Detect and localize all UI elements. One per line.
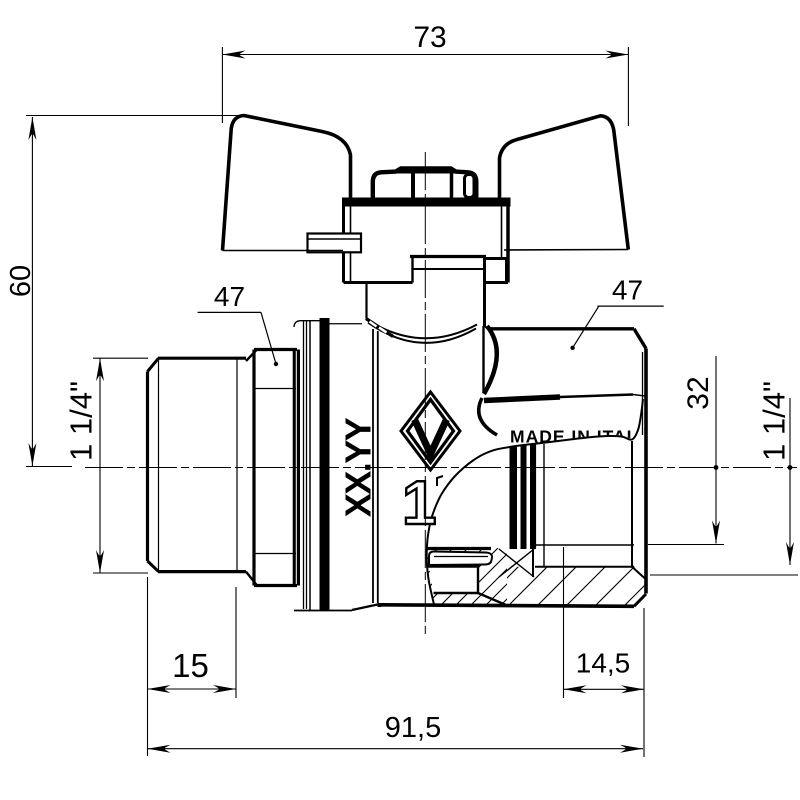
svg-text:15: 15 <box>172 647 209 684</box>
svg-text:47: 47 <box>612 275 643 306</box>
svg-text:32: 32 <box>682 376 715 409</box>
svg-text:1 1/4": 1 1/4" <box>757 381 792 461</box>
svg-text:14,5: 14,5 <box>576 648 631 679</box>
svg-text:60: 60 <box>5 265 37 297</box>
svg-text:91,5: 91,5 <box>385 712 441 744</box>
svg-text:1 1/4": 1 1/4" <box>64 381 99 461</box>
svg-text:73: 73 <box>413 21 446 54</box>
svg-text:1: 1 <box>402 469 436 538</box>
svg-text:47: 47 <box>214 281 245 312</box>
